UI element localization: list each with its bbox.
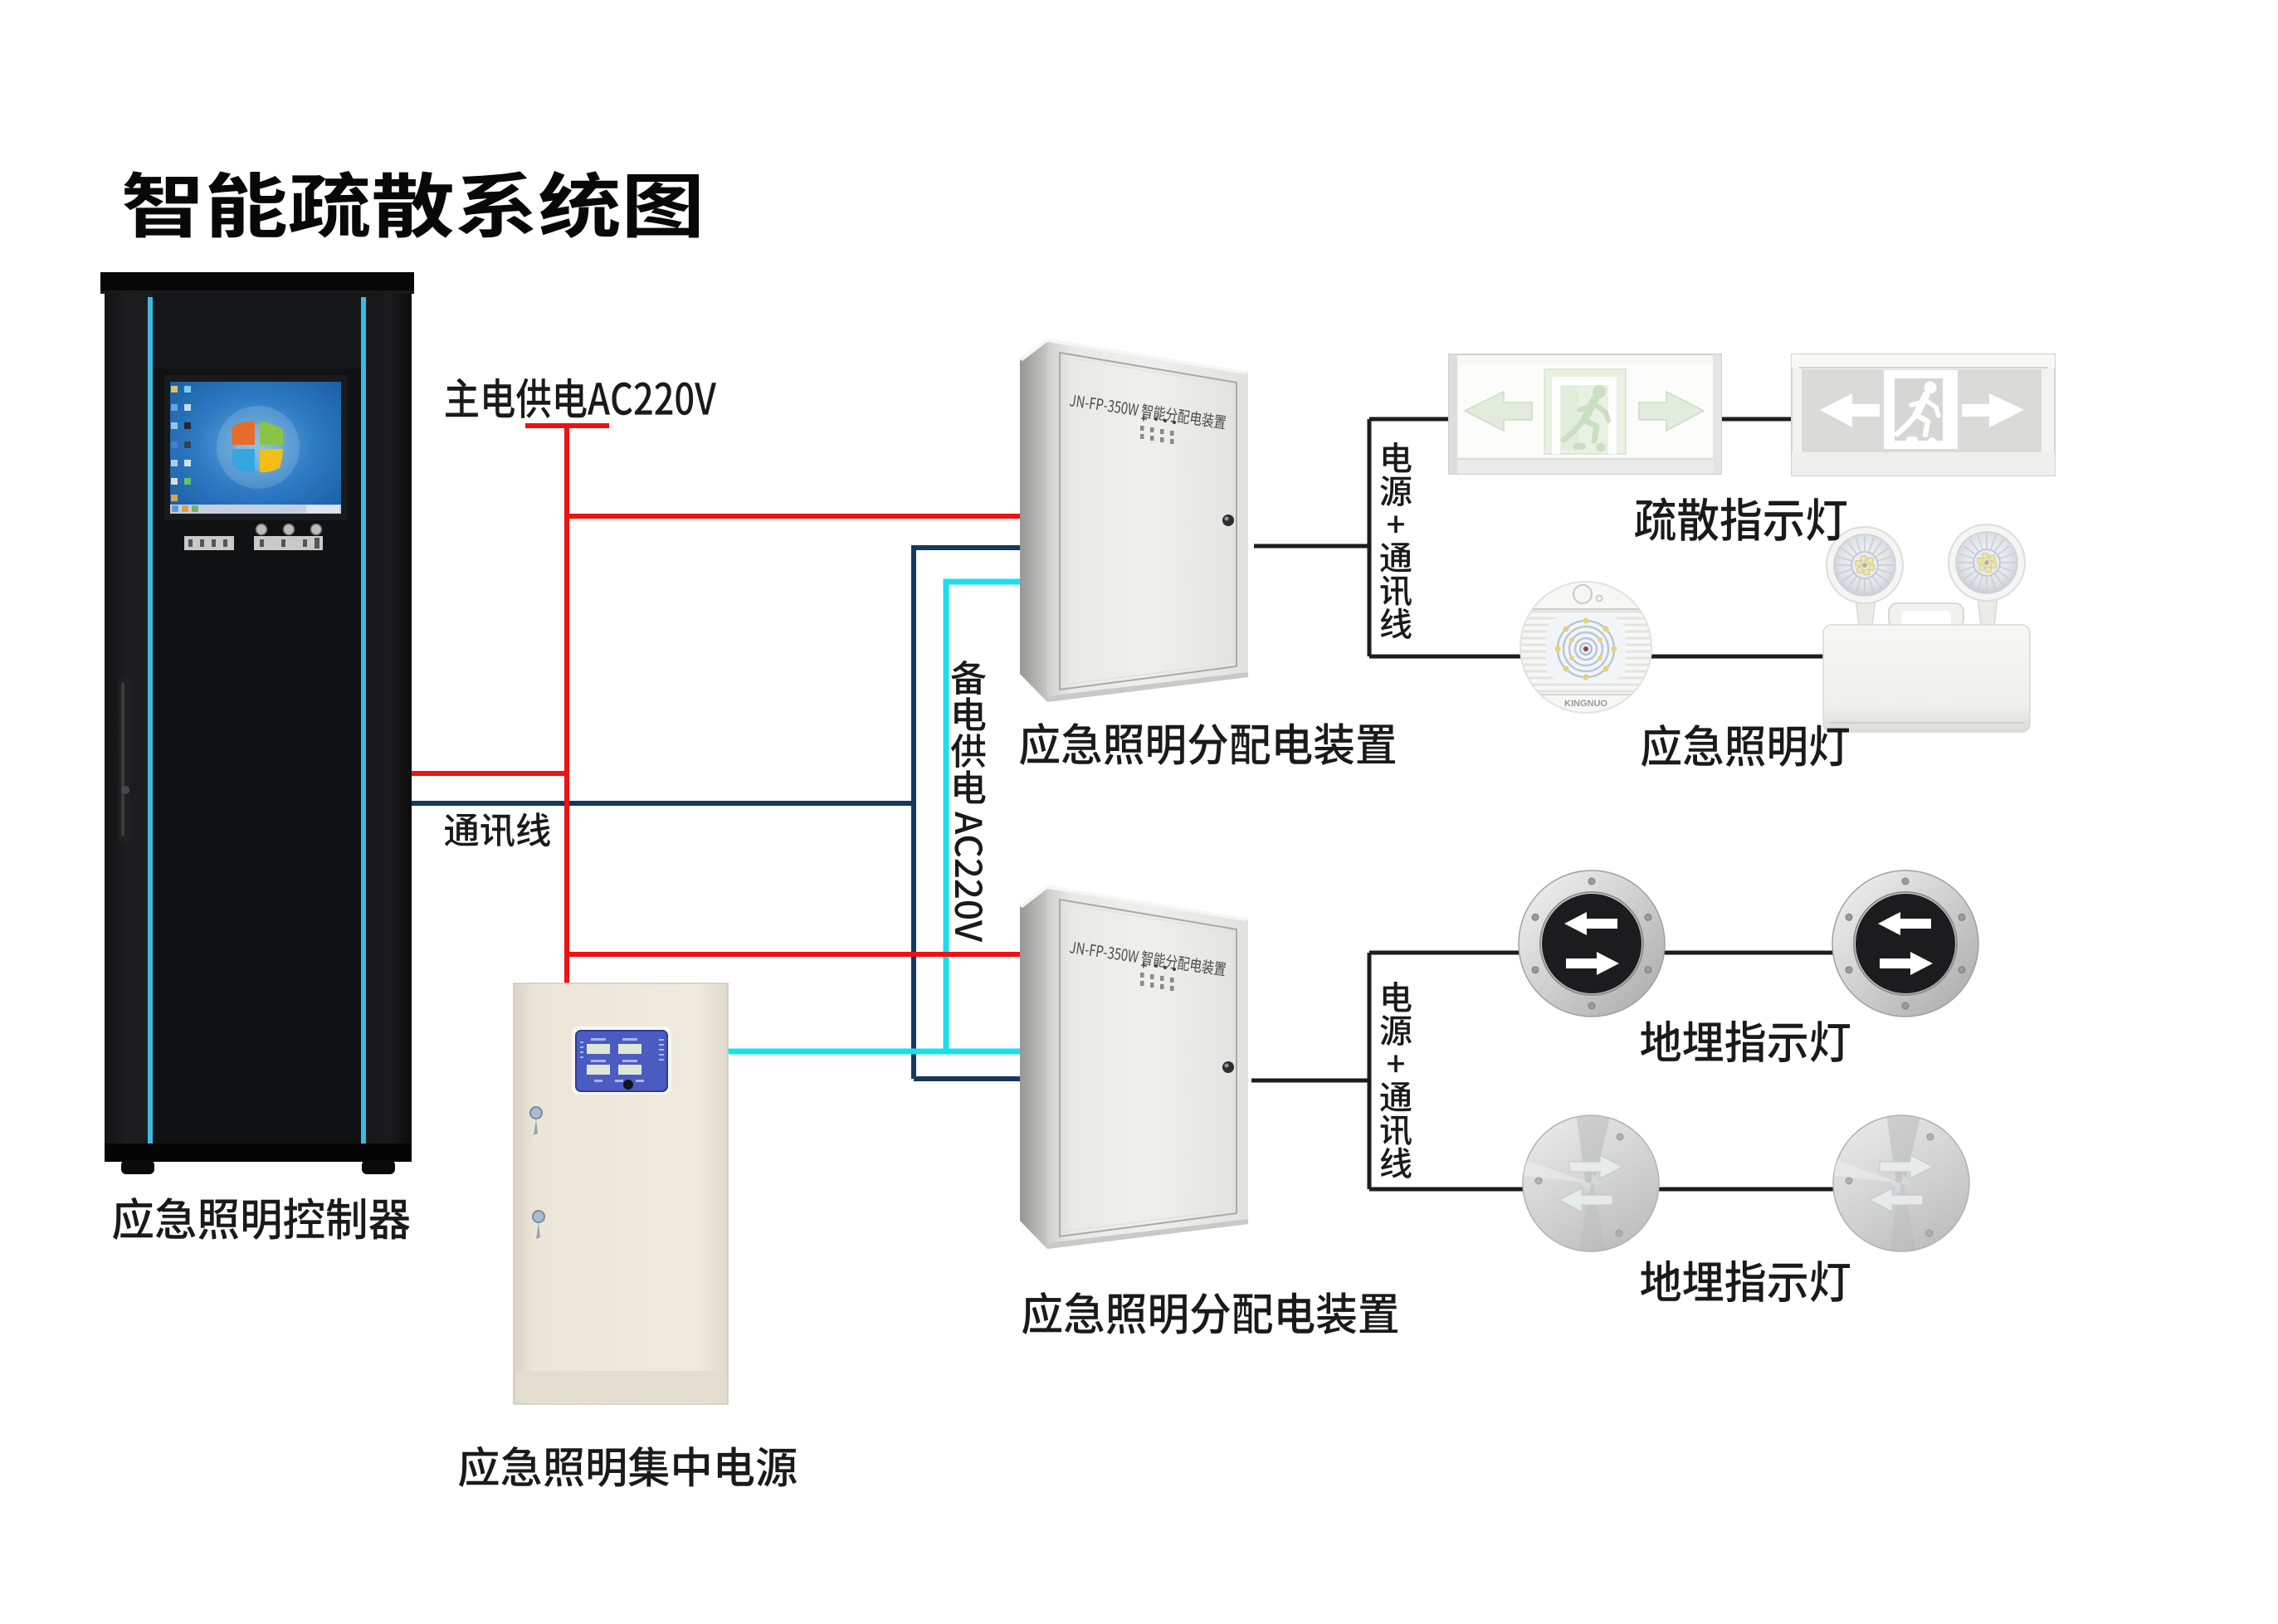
svg-text:KINGNUO: KINGNUO <box>1564 699 1607 709</box>
